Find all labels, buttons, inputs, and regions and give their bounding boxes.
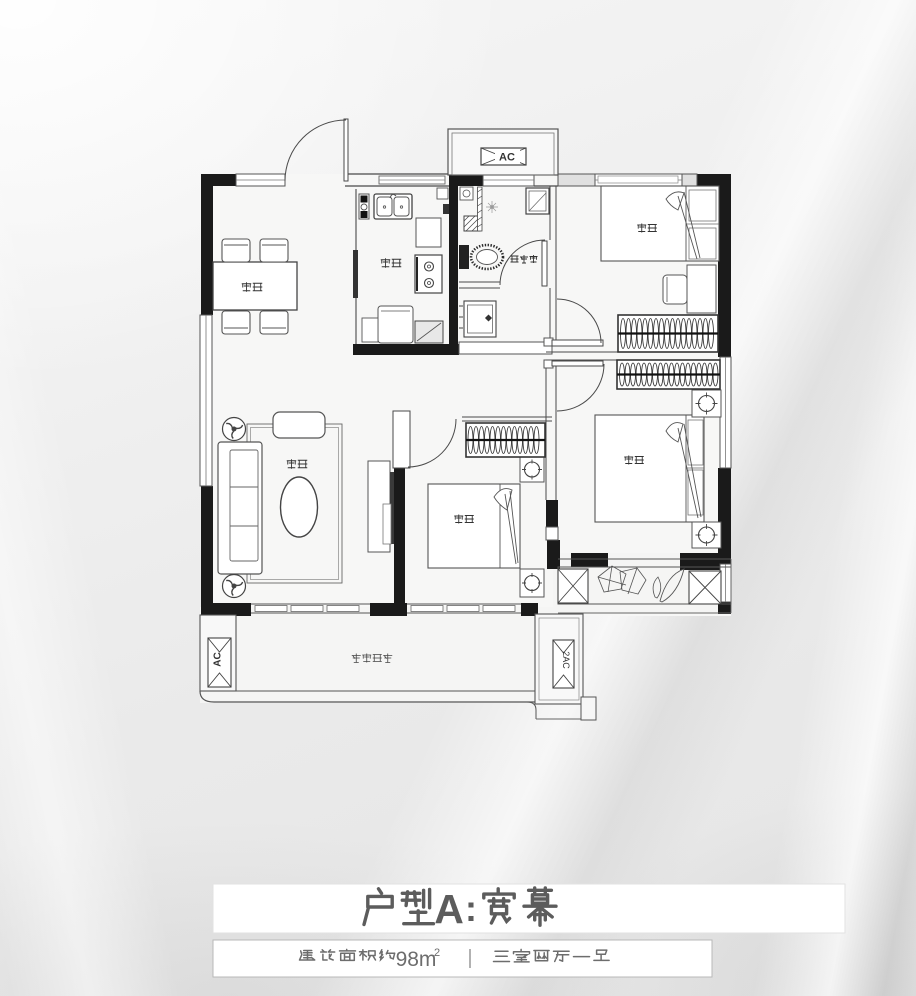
svg-text:2AC: 2AC bbox=[561, 651, 571, 669]
svg-text:AC: AC bbox=[499, 152, 515, 164]
svg-text:AC: AC bbox=[213, 652, 224, 666]
svg-text::: : bbox=[465, 888, 477, 929]
svg-text:2: 2 bbox=[434, 947, 440, 959]
svg-text:A: A bbox=[434, 886, 464, 932]
svg-text:98m: 98m bbox=[396, 948, 437, 971]
